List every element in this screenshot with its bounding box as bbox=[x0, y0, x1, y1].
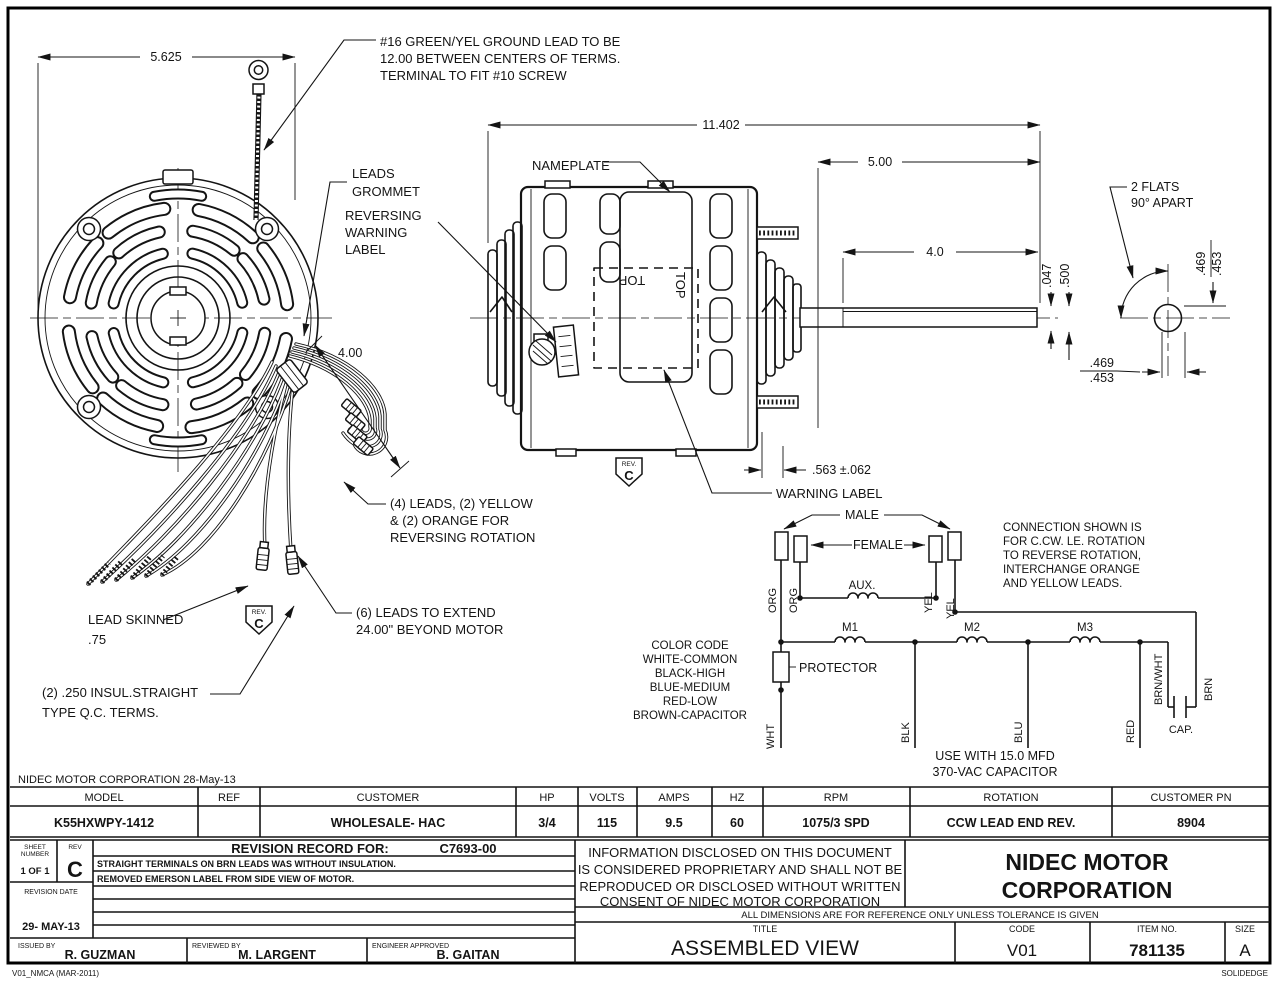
cad-footer: SOLIDEDGE bbox=[1221, 969, 1268, 978]
svg-text:C: C bbox=[624, 468, 634, 483]
wire-blk: BLK bbox=[900, 722, 912, 743]
svg-text:370-VAC CAPACITOR: 370-VAC CAPACITOR bbox=[932, 765, 1057, 779]
svg-text:K55HXWPY-1412: K55HXWPY-1412 bbox=[54, 816, 154, 830]
svg-text:WARNING LABEL: WARNING LABEL bbox=[776, 486, 882, 501]
reversing-warning-sticker bbox=[553, 325, 578, 377]
svg-text:MODEL: MODEL bbox=[84, 792, 123, 804]
svg-text:& (2) ORANGE FOR: & (2) ORANGE FOR bbox=[390, 513, 509, 528]
svg-text:USE WITH 15.0 MFD: USE WITH 15.0 MFD bbox=[935, 749, 1054, 763]
svg-text:5.625: 5.625 bbox=[150, 50, 181, 64]
code-label: CODE bbox=[1009, 924, 1035, 934]
cap-label: CAP. bbox=[1169, 724, 1193, 736]
engineering-drawing-page: TOP TOP bbox=[0, 0, 1280, 989]
protector-label: PROTECTOR bbox=[799, 661, 877, 675]
drawing-canvas: TOP TOP bbox=[0, 0, 1280, 989]
svg-text:VOLTS: VOLTS bbox=[589, 792, 624, 804]
wire-brn: BRN bbox=[1203, 678, 1215, 701]
svg-text:COLOR CODE: COLOR CODE bbox=[651, 640, 729, 652]
svg-text:5.00: 5.00 bbox=[868, 155, 892, 169]
svg-text:HZ: HZ bbox=[730, 792, 745, 804]
hub-keyway-bottom bbox=[170, 337, 186, 345]
m2-label: M2 bbox=[964, 622, 980, 634]
m3-label: M3 bbox=[1077, 622, 1093, 634]
fan-top-tab bbox=[163, 170, 193, 184]
tolerance-note: ALL DIMENSIONS ARE FOR REFERENCE ONLY UN… bbox=[741, 910, 1099, 921]
size-value: A bbox=[1239, 941, 1251, 960]
revision-date-label: REVISION DATE bbox=[24, 889, 78, 896]
flat-dim-upper: .469 bbox=[1194, 252, 1208, 276]
revision-date: 29- MAY-13 bbox=[22, 921, 80, 933]
doc-note: NIDEC MOTOR CORPORATION 28-May-13 bbox=[18, 774, 236, 786]
title-label: TITLE bbox=[753, 924, 778, 934]
item-label: ITEM NO. bbox=[1137, 924, 1177, 934]
terminal-collar bbox=[253, 84, 264, 94]
sheet-label: SHEET bbox=[24, 844, 46, 851]
svg-text:.469: .469 bbox=[1090, 356, 1114, 370]
svg-text:AND YELLOW LEADS.: AND YELLOW LEADS. bbox=[1003, 578, 1122, 590]
sheet-value: 1 OF 1 bbox=[20, 866, 50, 877]
svg-text:1075/3 SPD: 1075/3 SPD bbox=[802, 816, 869, 830]
svg-text:WARNING: WARNING bbox=[345, 225, 407, 240]
svg-text:NIDEC MOTOR: NIDEC MOTOR bbox=[1005, 849, 1169, 875]
flat-dim-lower: .453 bbox=[1210, 252, 1224, 276]
svg-text:3/4: 3/4 bbox=[538, 816, 555, 830]
svg-text:4.00: 4.00 bbox=[338, 346, 362, 360]
aux-label: AUX. bbox=[849, 580, 876, 592]
svg-text:REVERSING: REVERSING bbox=[345, 208, 422, 223]
svg-text:INFORMATION DISCLOSED ON THIS: INFORMATION DISCLOSED ON THIS DOCUMENT bbox=[588, 845, 892, 860]
svg-text:11.402: 11.402 bbox=[702, 118, 739, 132]
rev-label: REV bbox=[68, 844, 82, 851]
svg-text:CUSTOMER: CUSTOMER bbox=[357, 792, 420, 804]
wire-yel: YEL bbox=[923, 592, 935, 613]
svg-text:TO REVERSE ROTATION,: TO REVERSE ROTATION, bbox=[1003, 550, 1141, 562]
svg-text:GROMMET: GROMMET bbox=[352, 184, 420, 199]
svg-text:CORPORATION: CORPORATION bbox=[1002, 877, 1173, 903]
top-marker-inverted: TOP bbox=[619, 273, 646, 288]
m1-label: M1 bbox=[842, 622, 858, 634]
svg-text:INTERCHANGE ORANGE: INTERCHANGE ORANGE bbox=[1003, 564, 1140, 576]
svg-text:24.00" BEYOND MOTOR: 24.00" BEYOND MOTOR bbox=[356, 622, 503, 637]
svg-text:(4) LEADS, (2) YELLOW: (4) LEADS, (2) YELLOW bbox=[390, 496, 534, 511]
male-label: MALE bbox=[845, 508, 879, 522]
svg-text:ROTATION: ROTATION bbox=[983, 792, 1038, 804]
top-marker-rotated: TOP bbox=[673, 272, 688, 299]
svg-text:NUMBER: NUMBER bbox=[21, 851, 49, 858]
female-label: FEMALE bbox=[853, 538, 903, 552]
svg-text:REV.: REV. bbox=[252, 609, 267, 616]
svg-text:4.0: 4.0 bbox=[926, 245, 943, 259]
svg-text:90° APART: 90° APART bbox=[1131, 196, 1194, 210]
hub-keyway-top bbox=[170, 287, 186, 295]
svg-text:AMPS: AMPS bbox=[658, 792, 689, 804]
svg-text:LABEL: LABEL bbox=[345, 242, 385, 257]
svg-text:ORG: ORG bbox=[788, 588, 800, 613]
svg-text:FOR C.CW. LE. ROTATION: FOR C.CW. LE. ROTATION bbox=[1003, 536, 1145, 548]
svg-text:115: 115 bbox=[597, 816, 617, 830]
svg-text:CCW LEAD END REV.: CCW LEAD END REV. bbox=[947, 816, 1076, 830]
svg-text:12.00 BETWEEN CENTERS OF TERMS: 12.00 BETWEEN CENTERS OF TERMS. bbox=[380, 51, 620, 66]
svg-text:BROWN-CAPACITOR: BROWN-CAPACITOR bbox=[633, 710, 747, 722]
svg-text:RED-LOW: RED-LOW bbox=[663, 696, 717, 708]
revision-record-label: REVISION RECORD FOR: bbox=[231, 841, 388, 856]
form-footer: V01_NMCA (MAR-2011) bbox=[12, 969, 99, 978]
svg-text:TYPE Q.C. TERMS.: TYPE Q.C. TERMS. bbox=[42, 705, 159, 720]
drawing-title: ASSEMBLED VIEW bbox=[671, 937, 859, 960]
revision-note: REMOVED EMERSON LABEL FROM SIDE VIEW OF … bbox=[97, 874, 354, 884]
size-label: SIZE bbox=[1235, 924, 1255, 934]
svg-text:REPRODUCED OR DISCLOSED WITHOU: REPRODUCED OR DISCLOSED WITHOUT WRITTEN bbox=[579, 879, 900, 894]
svg-text:CONSENT OF NIDEC MOTOR CORPORA: CONSENT OF NIDEC MOTOR CORPORATION bbox=[600, 894, 880, 909]
svg-text:BLACK-HIGH: BLACK-HIGH bbox=[655, 668, 725, 680]
wire-wht: WHT bbox=[765, 724, 777, 749]
two-flats-note: 2 FLATS bbox=[1131, 180, 1179, 194]
svg-text:REVERSING ROTATION: REVERSING ROTATION bbox=[390, 530, 535, 545]
svg-text:8904: 8904 bbox=[1177, 816, 1205, 830]
wire-brn-wht: BRN/WHT bbox=[1153, 653, 1165, 705]
svg-text:CUSTOMER PN: CUSTOMER PN bbox=[1150, 792, 1231, 804]
svg-text:(6) LEADS TO EXTEND: (6) LEADS TO EXTEND bbox=[356, 605, 496, 620]
svg-text:BLUE-MEDIUM: BLUE-MEDIUM bbox=[650, 682, 731, 694]
wire-org: ORG bbox=[767, 588, 779, 613]
svg-text:9.5: 9.5 bbox=[665, 816, 682, 830]
svg-text:.500: .500 bbox=[1058, 264, 1072, 288]
svg-text:IS CONSIDERED PROPRIETARY AND: IS CONSIDERED PROPRIETARY AND SHALL NOT … bbox=[578, 862, 903, 877]
svg-text:60: 60 bbox=[730, 816, 744, 830]
svg-text:LEAD SKINNED: LEAD SKINNED bbox=[88, 612, 183, 627]
svg-text:CONNECTION SHOWN IS: CONNECTION SHOWN IS bbox=[1003, 522, 1142, 534]
revision-record-number: C7693-00 bbox=[439, 841, 496, 856]
motor-shaft bbox=[800, 308, 1037, 327]
reviewed-by-label: REVIEWED BY bbox=[192, 943, 241, 950]
issued-by-label: ISSUED BY bbox=[18, 943, 56, 950]
revision-note: STRAIGHT TERMINALS ON BRN LEADS WAS WITH… bbox=[97, 859, 396, 869]
code-value: V01 bbox=[1007, 941, 1037, 960]
svg-text:.75: .75 bbox=[88, 632, 106, 647]
svg-text:NAMEPLATE: NAMEPLATE bbox=[532, 158, 610, 173]
svg-text:REF: REF bbox=[218, 792, 240, 804]
svg-text:#16 GREEN/YEL GROUND LEAD TO B: #16 GREEN/YEL GROUND LEAD TO BE bbox=[380, 34, 621, 49]
svg-text:.047: .047 bbox=[1040, 264, 1054, 288]
svg-text:LEADS: LEADS bbox=[352, 166, 395, 181]
engineer-approved: B. GAITAN bbox=[437, 948, 500, 962]
svg-text:REV.: REV. bbox=[622, 461, 637, 468]
issued-by: R. GUZMAN bbox=[65, 948, 136, 962]
svg-text:TERMINAL TO FIT #10 SCREW: TERMINAL TO FIT #10 SCREW bbox=[380, 68, 567, 83]
svg-text:(2) .250 INSUL.STRAIGHT: (2) .250 INSUL.STRAIGHT bbox=[42, 685, 198, 700]
reviewed-by: M. LARGENT bbox=[238, 948, 316, 962]
wire-blu: BLU bbox=[1013, 722, 1025, 743]
svg-text:.453: .453 bbox=[1090, 371, 1114, 385]
svg-text:WHITE-COMMON: WHITE-COMMON bbox=[643, 654, 738, 666]
svg-text:C: C bbox=[254, 616, 264, 631]
svg-text:WHOLESALE- HAC: WHOLESALE- HAC bbox=[331, 816, 446, 830]
svg-text:HP: HP bbox=[539, 792, 554, 804]
item-number: 781135 bbox=[1129, 941, 1185, 960]
svg-text:.563 ±.062: .563 ±.062 bbox=[812, 463, 871, 477]
rev-value: C bbox=[67, 857, 83, 882]
wire-red: RED bbox=[1125, 720, 1137, 743]
svg-text:RPM: RPM bbox=[824, 792, 848, 804]
